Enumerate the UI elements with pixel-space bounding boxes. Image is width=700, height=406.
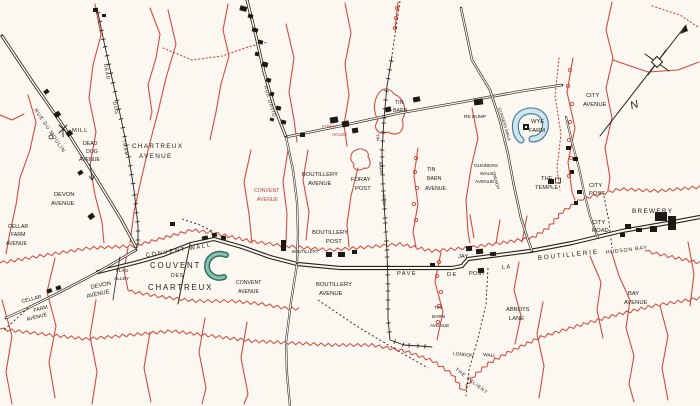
red-dotted-trench <box>163 42 268 60</box>
trench-line <box>303 150 309 240</box>
label-city-post: POST <box>589 191 605 197</box>
road-southwest <box>6 250 136 318</box>
trench-line <box>0 114 24 120</box>
label-couvent: COUVENT <box>150 261 201 270</box>
trench-line <box>90 300 97 404</box>
map-feature <box>352 128 359 134</box>
trench-line <box>611 250 634 402</box>
trench-line <box>537 302 544 398</box>
trench-line <box>413 148 418 247</box>
label-tin-barn-avenue-s: TIN <box>434 305 442 311</box>
map-feature <box>252 27 259 32</box>
map-feature <box>413 96 421 102</box>
dotted-track <box>182 219 212 231</box>
label-devon-avenue-nw: AVENUE <box>51 201 75 207</box>
label-la: LA <box>502 264 512 271</box>
trench-line <box>496 220 500 243</box>
label-bay-avenue: AVENUE <box>624 300 648 306</box>
label-devon-avenue-nw: DEVON <box>54 192 75 198</box>
trench-line <box>244 150 252 243</box>
label-devon-avenue-s: AVENUE <box>86 289 110 300</box>
label-jay-post: JAY <box>458 254 468 260</box>
trench-line <box>144 332 151 402</box>
label-boutillery-avenue-s: AVENUE <box>319 291 343 297</box>
label-boutillery-avenue-s: BOUTILLERY <box>316 282 352 288</box>
label-tin-barn: TIN <box>395 100 404 106</box>
map-feature <box>573 157 578 161</box>
map-feature <box>248 14 254 19</box>
map-feature <box>568 120 571 123</box>
label-gunners-walk-avenue: GUNNERS <box>474 163 498 169</box>
label-abbots-lane: LANE <box>509 316 524 322</box>
red-dotted-trench <box>652 6 698 27</box>
label-tin-barn-avenue-s: BARN <box>432 314 446 320</box>
tin-barn-tram-line <box>382 56 432 347</box>
label-jay-post: POST <box>469 271 485 277</box>
map-feature <box>620 233 625 237</box>
label-boutillery-post: POST <box>326 239 342 245</box>
map-feature <box>668 216 676 230</box>
label-wye-farm: FARM <box>529 128 545 134</box>
label-boutillery-avenue-n: AVENUE <box>308 181 332 187</box>
trench-line <box>283 150 288 243</box>
label-des: DES <box>171 273 184 279</box>
compass-arrowhead <box>680 25 688 34</box>
trench-line <box>199 318 206 404</box>
trench-line <box>590 256 603 338</box>
road-rue-david-core <box>247 0 286 137</box>
label-tin-barn-tram: TIN <box>375 134 381 141</box>
map-feature <box>574 201 578 205</box>
map-feature <box>342 120 350 127</box>
label-wye-farm: WYE <box>531 119 544 125</box>
label-gunners-walk-avenue: AVENUE <box>475 179 494 185</box>
label-convent-avenue-s: CONVENT <box>236 280 262 286</box>
label-flag-alley: FLAG <box>116 268 129 274</box>
label-tin-barn: BARN <box>393 108 408 114</box>
label-abbots-lane: ABBOTS <box>506 307 530 313</box>
compass-north-label: N <box>629 98 640 112</box>
map-feature <box>170 222 175 226</box>
map-feature <box>352 250 357 254</box>
map-feature <box>570 170 574 174</box>
label-tin-barn-tram: BARN <box>378 162 384 174</box>
map-feature <box>570 102 573 105</box>
label-cellar-farm-avenue-s: AVENUE <box>26 312 48 323</box>
dead-dog-tram-line <box>97 8 138 246</box>
label-chartreux-avenue: CHARTREUX <box>132 143 183 150</box>
label-dead-dog-avenue: DOG <box>86 149 98 155</box>
map-feature <box>439 290 442 293</box>
roads <box>2 0 700 406</box>
map-feature <box>93 8 98 12</box>
trench-map-page: N RUE DU MOULIN MILL DEAD DOG AVENUE DEA… <box>0 0 700 406</box>
trench-line <box>47 258 56 398</box>
map-feature <box>430 263 435 267</box>
label-city-road: ROAD <box>592 228 609 234</box>
label-chartreux: CHARTREUX <box>148 283 213 292</box>
label-london-wall: WALL <box>483 352 497 359</box>
map-feature <box>567 138 570 141</box>
label-convent-avenue-n: CONVENT <box>254 188 280 194</box>
trench-line <box>241 322 248 404</box>
trench-line <box>130 10 176 243</box>
trench-line <box>286 24 297 142</box>
map-feature <box>326 252 332 257</box>
label-mill: MILL <box>72 128 88 134</box>
label-convent-avenue-n: AVENUE <box>257 197 278 203</box>
map-feature <box>412 202 415 205</box>
label-chartreux-avenue: AVENUE <box>139 153 173 160</box>
map-feature <box>466 246 472 252</box>
label-foray-house: FORAY <box>322 124 338 129</box>
label-tin-barn-avenue-n: TIN <box>427 167 436 173</box>
label-london-wall: LONDON <box>453 351 475 359</box>
map-feature <box>300 133 305 137</box>
road-gunners-walk <box>461 8 532 251</box>
label-the-salient: THE SALIENT <box>454 367 489 396</box>
trench-line <box>466 108 478 243</box>
trench-line <box>210 4 229 140</box>
map-feature <box>476 249 483 255</box>
label-bay-avenue: BAY <box>628 291 639 297</box>
map-feature <box>650 226 657 232</box>
map-feature <box>43 89 49 95</box>
label-convent-avenue-s: AVENUE <box>238 289 259 295</box>
trench-map: N RUE DU MOULIN MILL DEAD DOG AVENUE DEA… <box>0 0 700 406</box>
label-brewery: BREWERY <box>632 208 673 215</box>
map-feature <box>281 240 286 251</box>
map-feature <box>636 228 642 232</box>
label-tin-barn-avenue-n: BARN <box>427 176 442 182</box>
label-foray-house: HOUSE <box>332 132 347 137</box>
front-line-breastwork <box>0 297 700 391</box>
label-city-post: CITY <box>589 183 602 189</box>
label-convent-wall: CONVENT WALL <box>145 243 212 259</box>
trench-line <box>605 2 613 190</box>
map-feature <box>55 285 61 290</box>
red-dotted-trench <box>555 58 561 190</box>
label-foray-post: POST <box>355 186 371 192</box>
label-dead-dog-tram: TRAM <box>120 139 129 157</box>
map-feature <box>625 224 631 229</box>
map-feature <box>474 98 484 105</box>
label-city-road: CITY <box>592 220 605 226</box>
label-city-avenue: CITY <box>586 93 599 99</box>
road-rue-du-moulin <box>2 36 136 247</box>
label-pave: PAVE <box>397 271 417 277</box>
dead-dog-tram-line-ticks <box>96 13 140 241</box>
label-boutillery-avenue-n: BOUTILLERY <box>302 172 338 178</box>
label-the-temple: THE <box>541 176 553 182</box>
map-feature <box>577 190 582 194</box>
label-tin-barn-avenue-s: AVENUE <box>430 323 449 329</box>
map-feature <box>385 106 392 112</box>
map-feature <box>87 213 95 221</box>
map-feature <box>490 252 496 257</box>
label-boutillery-farm: BOUTILLERY <box>292 249 320 254</box>
label-cellar-farm-avenue-n: CELLAR <box>8 224 28 230</box>
map-feature <box>569 156 572 159</box>
label-flag-alley: ALLEY <box>114 276 130 282</box>
map-feature <box>270 118 275 122</box>
compass-rose: N <box>600 25 688 136</box>
label-tin-barn-avenue-n: AVENUE <box>425 186 446 192</box>
map-feature <box>566 146 571 150</box>
trench-line <box>470 215 474 238</box>
trench-line <box>514 262 521 344</box>
trench-line <box>688 242 694 306</box>
label-re-dump: RE DUMP <box>464 114 486 120</box>
support-breastwork <box>128 290 299 310</box>
map-feature <box>330 116 339 123</box>
label-the-temple: TEMPLE <box>535 185 558 191</box>
label-boutillerie: BOUTILLERIE <box>537 249 599 262</box>
map-feature <box>102 14 106 17</box>
trench-line <box>148 8 160 120</box>
wye-farm-moat <box>515 111 545 140</box>
road-convent-avenue <box>286 137 298 264</box>
map-feature <box>221 236 226 240</box>
label-cellar-farm-avenue-n: FARM <box>11 232 25 238</box>
label-boutillery-post: BOUTILLERY <box>312 230 348 236</box>
label-hudson-bay: HUDSON BAY <box>606 245 648 256</box>
wye-farm-courtyard <box>525 126 527 128</box>
foray-post-outline <box>351 149 370 170</box>
trench-line <box>660 306 668 400</box>
label-de: DE <box>447 272 458 278</box>
label-tin-barn-tram: TRAM <box>381 194 387 207</box>
label-city-avenue: AVENUE <box>583 102 607 108</box>
label-dead-dog-avenue: AVENUE <box>79 157 100 163</box>
label-foray-post: FORAY <box>351 177 371 183</box>
label-dead-dog-avenue: DEAD <box>83 141 98 147</box>
tram-lines <box>96 8 432 348</box>
label-cellar-farm-avenue-n: AVENUE <box>6 241 27 247</box>
map-feature <box>77 170 83 176</box>
map-feature <box>239 5 247 12</box>
map-feature <box>338 252 345 257</box>
dotted-track-salient <box>318 300 428 368</box>
compass-needle <box>600 25 686 136</box>
